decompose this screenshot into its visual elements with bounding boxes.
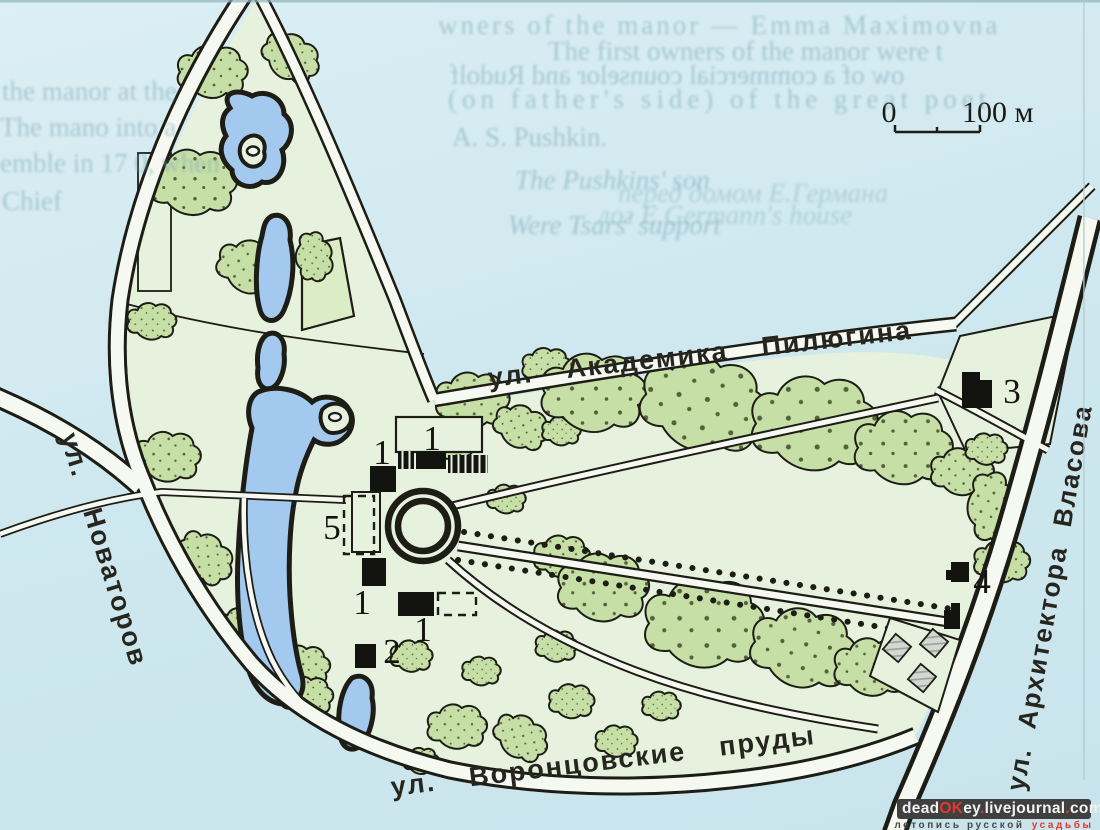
marker-1-west: 1 [373, 433, 391, 472]
ghost-text-line: лог Е.Germann's house [598, 200, 852, 231]
building-4 [951, 562, 969, 582]
building-2 [355, 644, 376, 668]
watermark-part: dead [902, 800, 939, 817]
ghost-text-line: emble in 17 0, when [0, 148, 220, 179]
scan-edge-right [1083, 0, 1085, 780]
ghost-text-line: the manor at the [2, 76, 177, 107]
marker-3: 3 [1003, 372, 1021, 411]
watermark-part: OK [939, 800, 963, 817]
ghost-text-line: Chief [2, 186, 62, 217]
watermark-subtitle-red: усадьбы [1032, 820, 1094, 830]
watermark-url: deadOKey.livejournal.com [897, 799, 1091, 819]
ghost-text-line: The mano into a [0, 112, 176, 143]
marker-4: 4 [973, 562, 991, 601]
marker-1-forecourt: 1 [423, 419, 441, 458]
marker-1-south: 1 [414, 610, 432, 649]
watermark: deadOKey.livejournal.com летопись русско… [897, 799, 1091, 830]
watermark-part: ey [963, 800, 980, 817]
scanned-park-plan-page: ул. Академика Пилюгина ул. Воронцовские … [0, 0, 1100, 830]
ghost-text-line: A. S. Pushkin. [452, 122, 607, 153]
watermark-subtitle-dark: летопись русской [894, 820, 1024, 830]
watermark-subtitle: летопись русской усадьбы [897, 820, 1091, 830]
pond-long [256, 215, 293, 320]
ghost-text-line: (on father's side) of the great poet [448, 84, 991, 115]
watermark-part: livejournal [985, 800, 1066, 817]
scan-edge-top [0, 0, 1100, 3]
pond-small-mid [257, 333, 284, 389]
watermark-part: com [1070, 800, 1100, 817]
marker-1-southwest: 1 [353, 583, 371, 622]
marker-5: 5 [323, 508, 341, 547]
marker-2: 2 [383, 632, 401, 671]
